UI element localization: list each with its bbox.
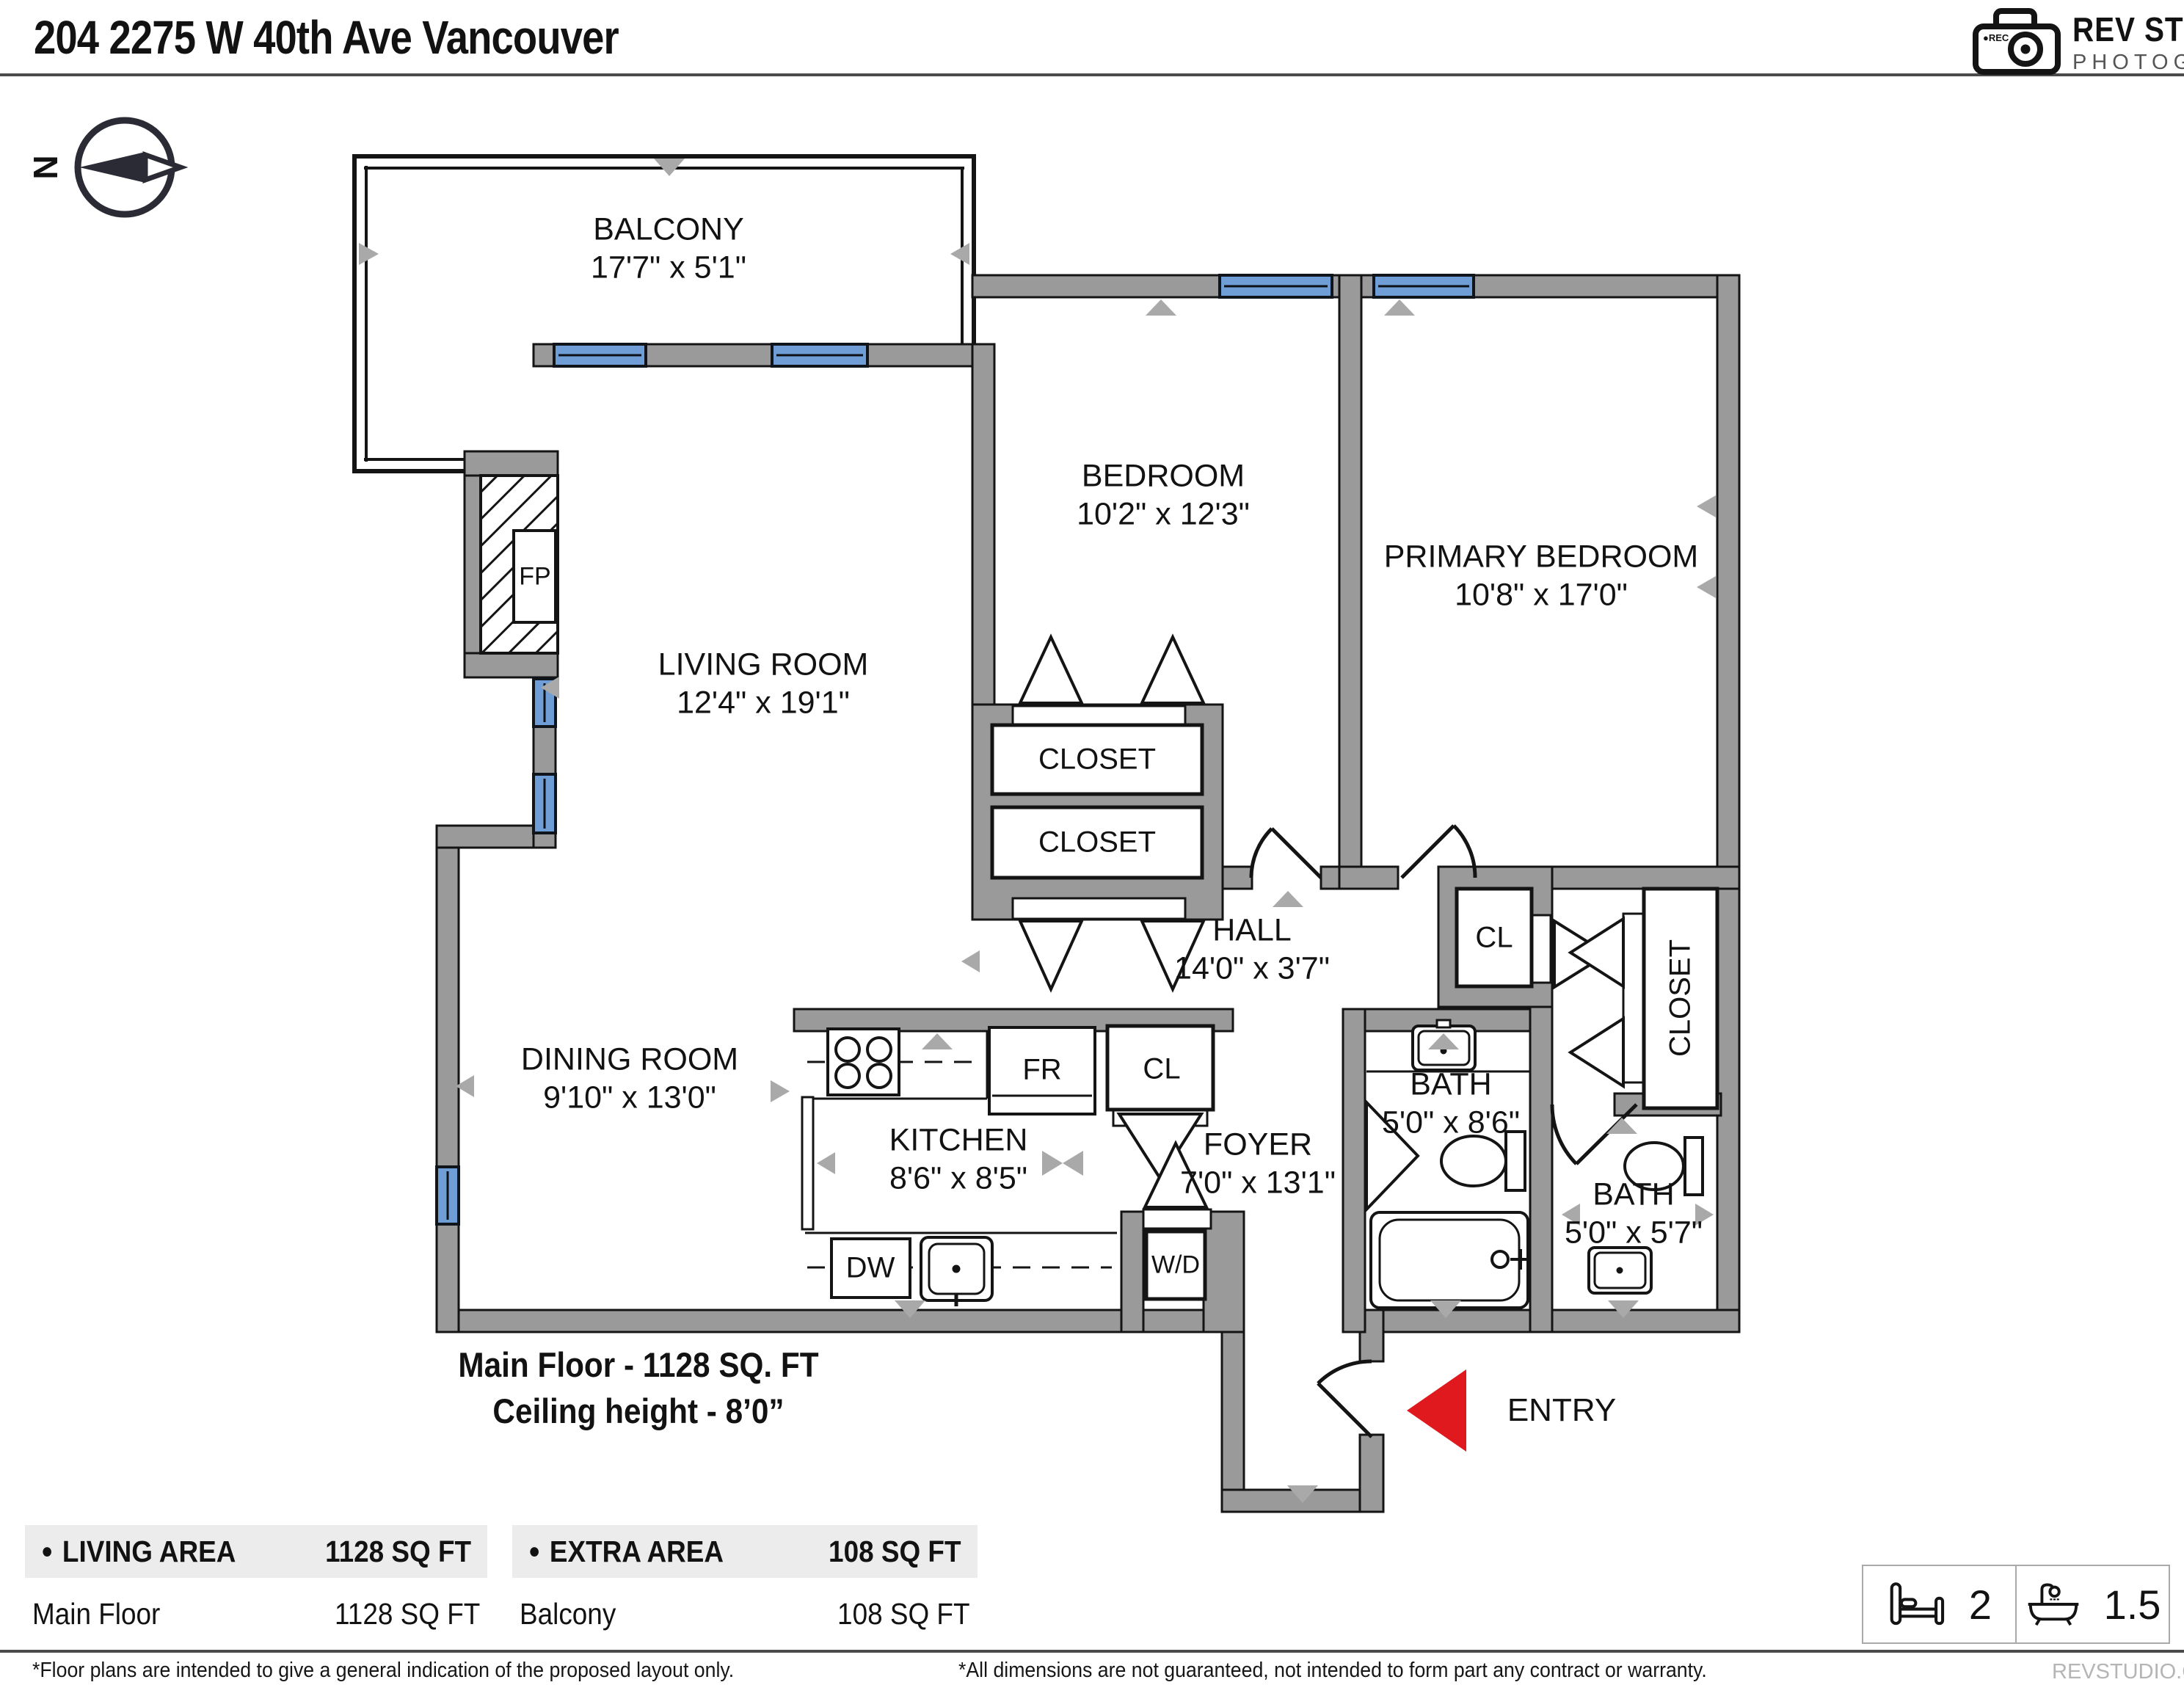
- floor-area-text: Main Floor - 1128 SQ. FT: [434, 1342, 843, 1388]
- table-row: Main Floor 1128 SQ FT: [25, 1578, 487, 1631]
- extra-area-header: ● EXTRA AREA 108 SQ FT: [512, 1525, 978, 1578]
- living-area-header-label: LIVING AREA: [62, 1535, 236, 1569]
- living-area-header: ● LIVING AREA 1128 SQ FT: [25, 1525, 487, 1578]
- table-row: Balcony 108 SQ FT: [512, 1578, 978, 1631]
- living-area-row-value: 1128 SQ FT: [335, 1597, 480, 1631]
- bath-count: 1.5: [2104, 1581, 2161, 1628]
- room-label-bath-half: BATH5'0" x 5'7": [1565, 1176, 1703, 1251]
- room-label-balcony: BALCONY17'7" x 5'1": [591, 211, 746, 286]
- footer-brand: REVSTUDIO.CA: [2052, 1660, 2184, 1684]
- room-label-dining-room: DINING ROOM9'10" x 13'0": [521, 1041, 738, 1116]
- bath-count-cell: 1.5: [2017, 1566, 2169, 1642]
- fireplace-label: FP: [519, 563, 550, 592]
- bed-bath-stats: 2 1.5: [1862, 1565, 2170, 1644]
- room-label-primary-bedroom: PRIMARY BEDROOM10'8" x 17'0": [1384, 538, 1699, 614]
- ceiling-height-text: Ceiling height - 8’0”: [434, 1388, 843, 1434]
- floor-plan-page: 204 2275 W 40th Ave Vancouver ●REC REV S…: [0, 0, 2184, 1685]
- bed-count-cell: 2: [1863, 1566, 2017, 1642]
- dishwasher-label: DW: [846, 1252, 895, 1285]
- closet-kitchen-label: CL: [1143, 1053, 1180, 1086]
- extra-area-table: ● EXTRA AREA 108 SQ FT Balcony 108 SQ FT: [512, 1525, 978, 1631]
- extra-area-row-value: 108 SQ FT: [838, 1597, 970, 1631]
- room-label-hall: HALL14'0" x 3'7": [1174, 911, 1330, 987]
- extra-area-header-label: EXTRA AREA: [550, 1535, 724, 1569]
- closet-lower-label: CLOSET: [1038, 826, 1156, 859]
- closet-primary-label: CLOSET: [1664, 939, 1697, 1057]
- bed-count: 2: [1969, 1581, 1992, 1628]
- room-label-bedroom: BEDROOM10'2" x 12'3": [1077, 457, 1250, 533]
- bullet-icon: ●: [528, 1539, 540, 1564]
- footer-divider: [0, 1650, 2184, 1653]
- washer-dryer-label: W/D: [1151, 1251, 1200, 1280]
- entry-arrow-icon: [1407, 1369, 1466, 1452]
- extra-area-header-value: 108 SQ FT: [829, 1535, 961, 1569]
- closet-upper-label: CLOSET: [1038, 743, 1156, 776]
- bed-icon: [1887, 1582, 1947, 1627]
- balcony-outline: [352, 154, 976, 473]
- room-label-kitchen: KITCHEN8'6" x 8'5": [889, 1121, 1028, 1197]
- room-label-foyer: FOYER7'0" x 13'1": [1180, 1126, 1336, 1201]
- fridge-label: FR: [1022, 1054, 1061, 1087]
- closet-hall-label: CL: [1475, 922, 1513, 955]
- living-area-row-label: Main Floor: [32, 1597, 160, 1631]
- entry-label: ENTRY: [1507, 1392, 1616, 1429]
- living-area-table: ● LIVING AREA 1128 SQ FT Main Floor 1128…: [25, 1525, 487, 1631]
- footer-disclaimer-left: *Floor plans are intended to give a gene…: [32, 1659, 734, 1683]
- bullet-icon: ●: [41, 1539, 53, 1564]
- footer-disclaimer-right: *All dimensions are not guaranteed, not …: [958, 1659, 1707, 1683]
- bathtub-icon: [2025, 1580, 2082, 1628]
- extra-area-row-label: Balcony: [520, 1597, 616, 1631]
- room-label-living-room: LIVING ROOM12'4" x 19'1": [658, 646, 869, 721]
- room-label-bath-main: BATH5'0" x 8'6": [1382, 1066, 1520, 1141]
- floor-info: Main Floor - 1128 SQ. FT Ceiling height …: [434, 1342, 843, 1435]
- living-area-header-value: 1128 SQ FT: [325, 1535, 471, 1569]
